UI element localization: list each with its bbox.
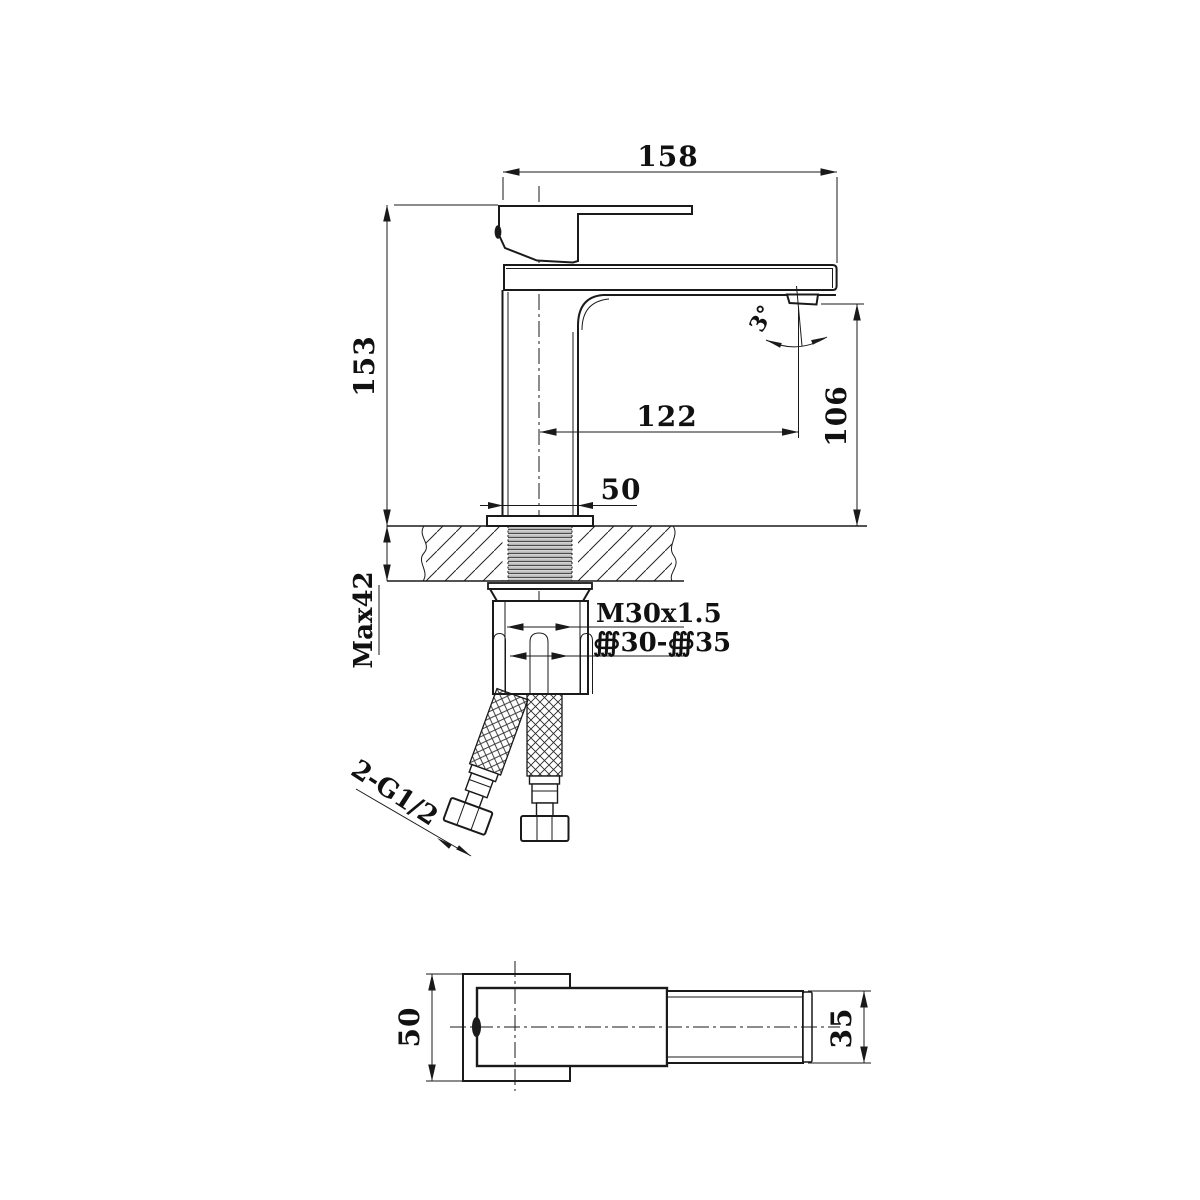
mounting-hardware xyxy=(488,583,593,694)
faucet-dimension-drawing: 158 153 Max42 122 106 50 xyxy=(0,0,1200,1200)
dim-max42-label: Max42 xyxy=(349,571,379,668)
spout-body xyxy=(503,265,837,516)
dim-thread-label: M30x1.5 xyxy=(596,599,722,629)
dim-50-side: 50 xyxy=(480,473,641,509)
dim-122-label: 122 xyxy=(636,400,697,433)
dim-50-plan-label: 50 xyxy=(393,1007,426,1048)
dim-35-plan-label: 35 xyxy=(825,1008,858,1049)
counter-hatch-left xyxy=(426,526,503,581)
handle xyxy=(495,206,692,263)
counter-hatch-right xyxy=(578,526,672,581)
dim-106-label: 106 xyxy=(820,385,853,446)
plan-view: 50 35 xyxy=(393,961,871,1091)
braided-hose xyxy=(470,689,528,775)
hose-neck xyxy=(537,803,554,816)
dim-153: 153 xyxy=(348,205,498,526)
supply-hose-right xyxy=(521,694,569,841)
side-view: 158 153 Max42 122 106 50 xyxy=(346,140,867,856)
dim-max42: Max42 xyxy=(349,526,387,669)
mounting-nut xyxy=(493,601,588,694)
dim-hose-thread-label: 2-G1/2 xyxy=(346,754,443,832)
break-line-left xyxy=(421,526,426,581)
dim-158-label: 158 xyxy=(637,140,698,173)
hose-ferrule xyxy=(532,784,558,803)
technical-drawing-page: 158 153 Max42 122 106 50 xyxy=(0,0,1200,1200)
hex-nut xyxy=(521,816,569,841)
handle-screw-icon xyxy=(495,225,502,239)
cone-washer xyxy=(490,589,590,601)
hose-collar xyxy=(530,776,560,784)
supply-hose-left xyxy=(443,687,533,835)
dim-hole-label: ∰30-∰35 xyxy=(593,628,731,658)
dim-50-side-label: 50 xyxy=(601,473,642,506)
handle-lever xyxy=(499,206,692,263)
braided-hose xyxy=(527,694,562,776)
mounting-shank-threads xyxy=(508,526,572,581)
dim-153-label: 153 xyxy=(348,335,381,396)
aerator xyxy=(787,295,818,305)
escutcheon xyxy=(487,516,593,526)
angle-3deg-label: 3° xyxy=(744,301,779,336)
hex-nut xyxy=(443,798,493,836)
countertop-section xyxy=(387,526,867,581)
dim-35-plan: 35 xyxy=(808,991,871,1063)
